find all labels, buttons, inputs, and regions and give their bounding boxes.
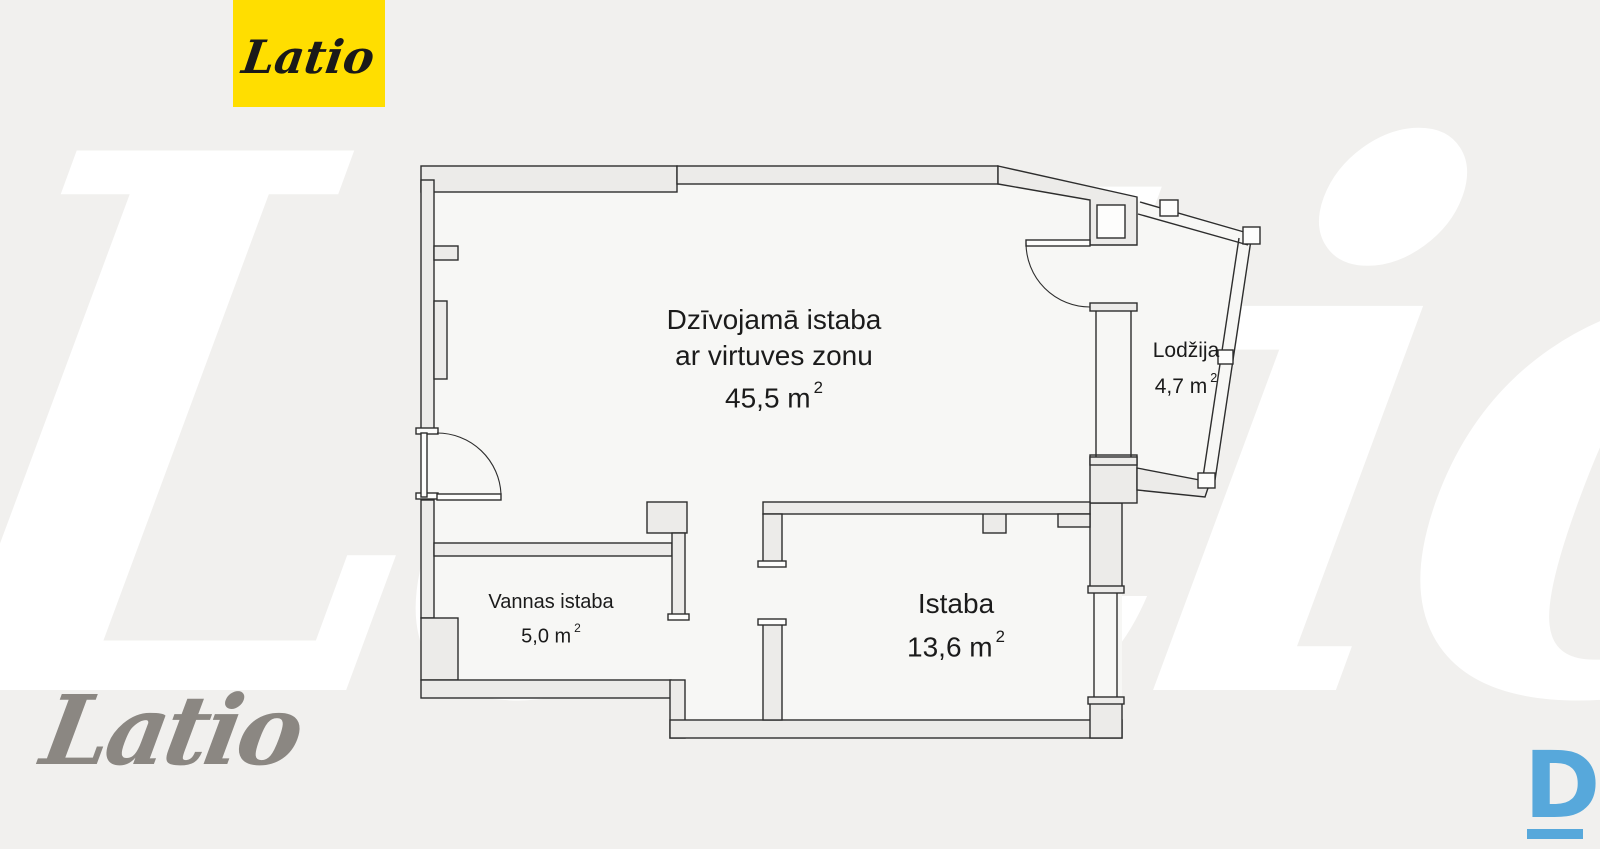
room-name-living-1: Dzīvojamā istaba — [618, 302, 930, 338]
room-area-living: 45,5 m2 — [618, 374, 930, 416]
room-label-loggia: Lodžija 4,7 m2 — [1120, 336, 1252, 402]
room-name-bathroom: Vannas istaba — [446, 588, 656, 617]
room-area-bathroom: 5,0 m2 — [446, 617, 656, 652]
entrance-threshold — [421, 433, 427, 497]
corner-d-underline — [1527, 829, 1583, 839]
page: Latio Latio — [0, 0, 1600, 849]
room-name-room: Istaba — [851, 585, 1061, 622]
footer-script-logo: Latio — [34, 676, 308, 786]
room-label-living: Dzīvojamā istaba ar virtuves zonu 45,5 m… — [618, 302, 930, 416]
room-area-loggia: 4,7 m2 — [1120, 366, 1252, 402]
floor-area — [421, 166, 1253, 738]
room-label-bathroom: Vannas istaba 5,0 m2 — [446, 588, 656, 652]
room-name-loggia: Lodžija — [1120, 336, 1252, 366]
room-label-room: Istaba 13,6 m2 — [851, 585, 1061, 665]
corner-d-logo: D — [1520, 741, 1590, 841]
room-name-living-2: ar virtuves zonu — [618, 338, 930, 374]
room-area-room: 13,6 m2 — [851, 622, 1061, 665]
corner-d-glyph: D — [1524, 740, 1600, 832]
